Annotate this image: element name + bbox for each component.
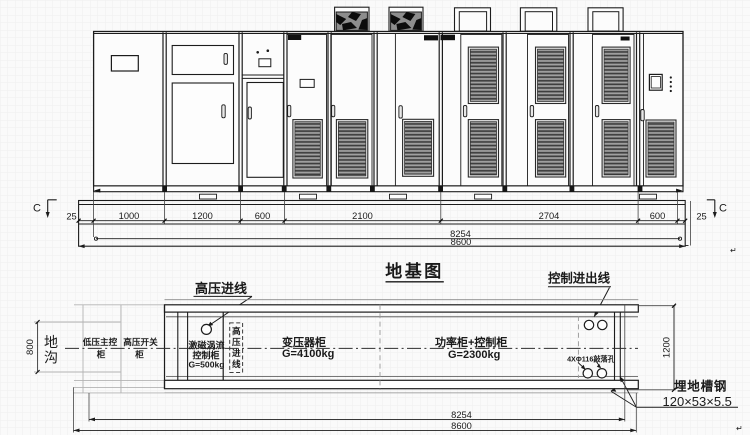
svg-text:↵: ↵ (730, 246, 737, 255)
svg-text:进: 进 (232, 347, 241, 358)
svg-text:800: 800 (25, 339, 36, 355)
svg-text:25: 25 (66, 211, 76, 221)
svg-text:↵: ↵ (736, 424, 743, 433)
svg-text:1200: 1200 (192, 211, 213, 221)
svg-text:控制进出线: 控制进出线 (548, 271, 611, 286)
svg-text:线: 线 (232, 358, 241, 369)
svg-text:地: 地 (44, 334, 58, 350)
svg-text:沟: 沟 (44, 350, 58, 366)
svg-text:4XΦ116敲落孔: 4XΦ116敲落孔 (567, 354, 616, 363)
svg-text:2100: 2100 (352, 211, 373, 221)
svg-text:1000: 1000 (119, 211, 140, 221)
svg-text:地基图: 地基图 (385, 261, 444, 281)
svg-text:C: C (719, 203, 727, 215)
svg-text:压: 压 (232, 337, 241, 347)
svg-text:8600: 8600 (451, 237, 472, 247)
svg-text:高压开关: 高压开关 (123, 336, 158, 347)
svg-text:25: 25 (696, 211, 706, 221)
svg-text:柜: 柜 (134, 349, 144, 360)
svg-text:C: C (33, 203, 41, 215)
svg-text:600: 600 (255, 211, 271, 221)
svg-text:功率柜+控制柜: 功率柜+控制柜 (435, 335, 507, 349)
svg-text:柜: 柜 (96, 349, 106, 360)
svg-text:1200: 1200 (662, 337, 673, 358)
svg-text:8254: 8254 (451, 410, 472, 420)
svg-text:埋地槽钢: 埋地槽钢 (674, 378, 727, 393)
svg-text:低压主控: 低压主控 (82, 336, 118, 347)
svg-text:高压进线: 高压进线 (195, 281, 247, 296)
svg-text:2704: 2704 (539, 211, 560, 221)
svg-text:变压器柜: 变压器柜 (282, 335, 326, 349)
svg-text:120×53×5.5: 120×53×5.5 (663, 394, 732, 409)
svg-text:G=2300kg: G=2300kg (448, 349, 500, 361)
svg-text:高: 高 (232, 325, 241, 336)
svg-text:激磁涡流: 激磁涡流 (188, 340, 224, 351)
svg-text:600: 600 (650, 211, 666, 221)
svg-text:8600: 8600 (451, 421, 472, 431)
svg-text:G=4100kg: G=4100kg (282, 348, 334, 360)
svg-text:G=500kg: G=500kg (188, 360, 224, 370)
